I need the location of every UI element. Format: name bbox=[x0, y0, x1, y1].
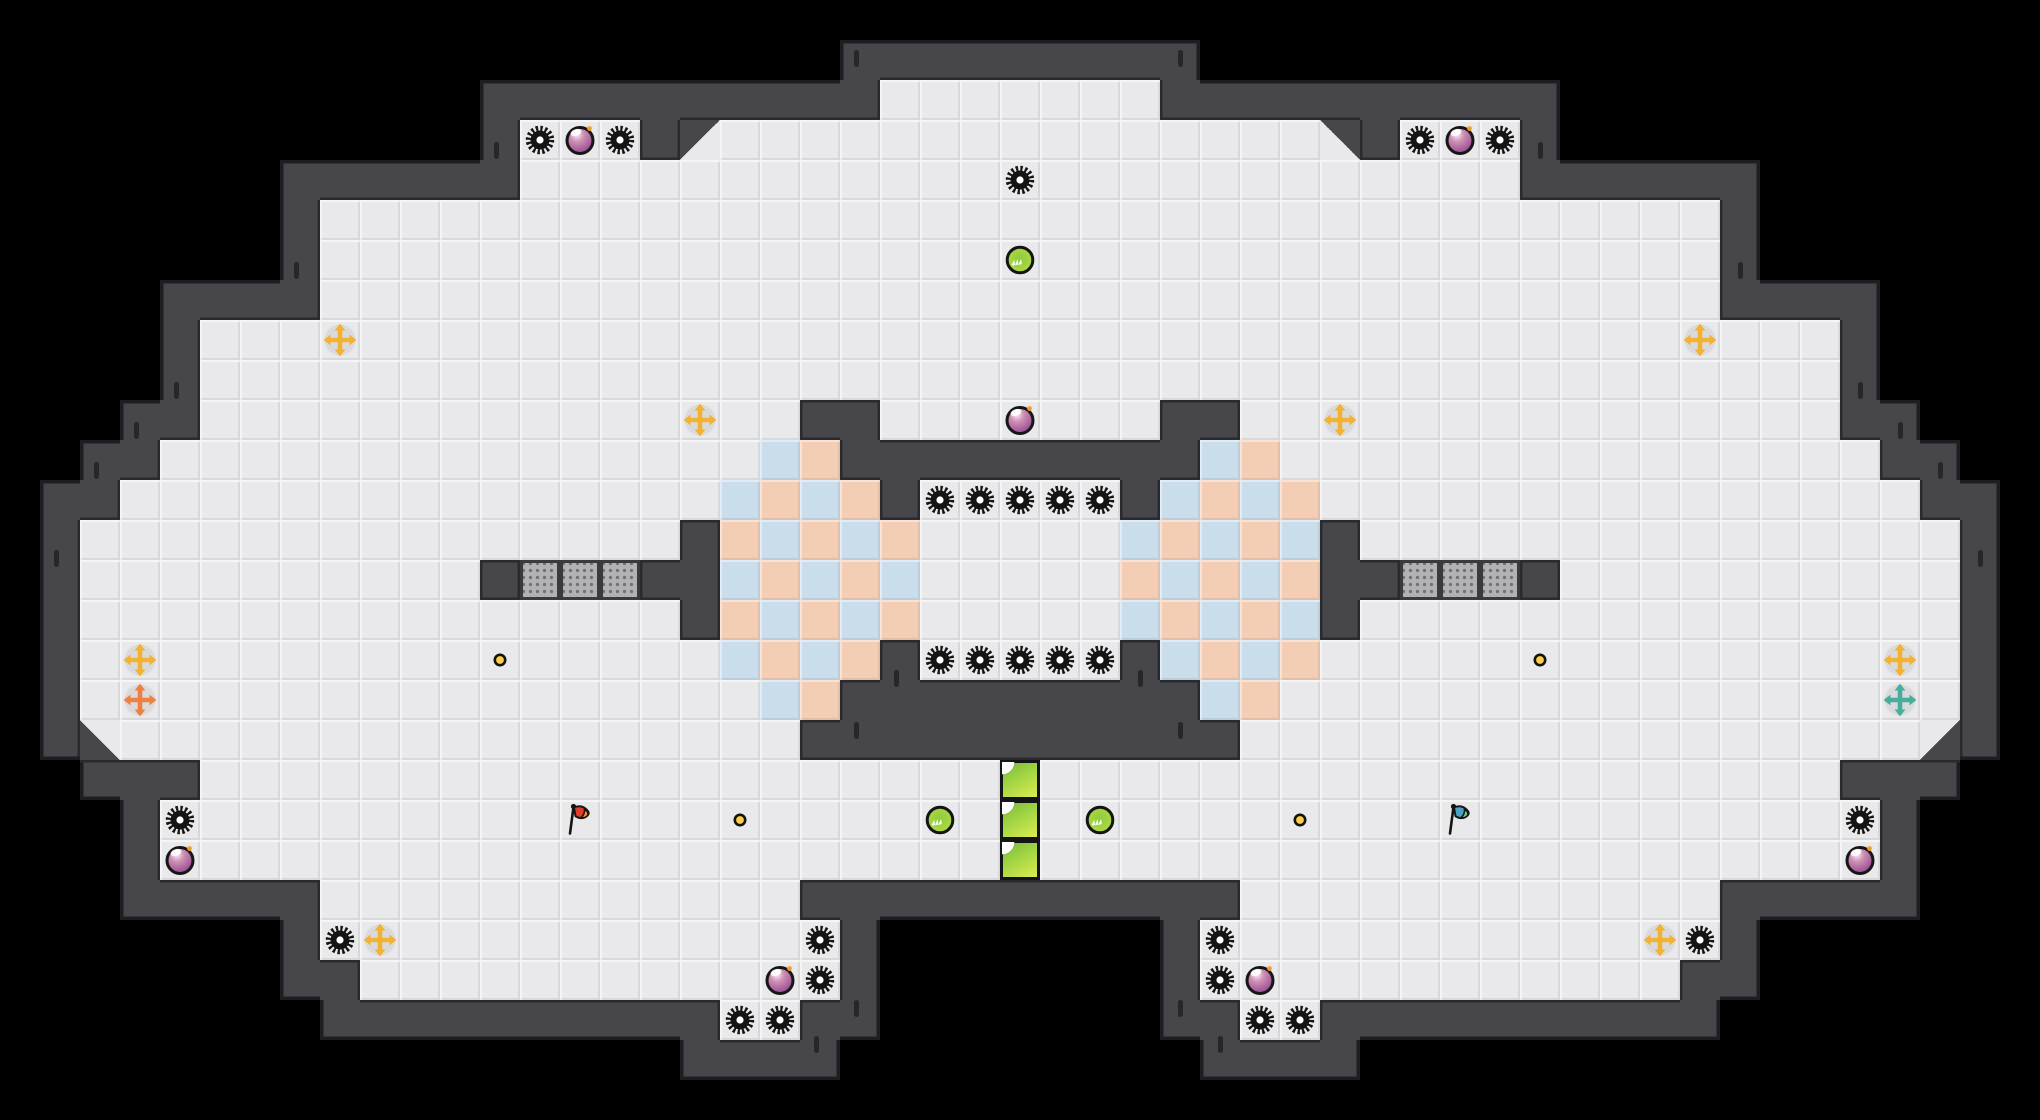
void-tile bbox=[0, 720, 40, 760]
floor-tile bbox=[1200, 240, 1240, 280]
floor-tile bbox=[960, 840, 1000, 880]
wall-tile bbox=[1400, 80, 1440, 120]
wall-tick bbox=[1938, 462, 1943, 479]
wall-tile bbox=[1960, 640, 2000, 680]
floor-tile bbox=[1560, 240, 1600, 280]
void-tile bbox=[880, 0, 920, 40]
floor-tile bbox=[400, 360, 440, 400]
floor-tile bbox=[1400, 360, 1440, 400]
void-tile bbox=[680, 0, 720, 40]
checker-tile-blue bbox=[1200, 680, 1240, 720]
mine-orb-hazard bbox=[1840, 840, 1880, 880]
void-tile bbox=[1480, 1080, 1520, 1120]
floor-tile bbox=[1360, 760, 1400, 800]
void-tile bbox=[160, 120, 200, 160]
floor-tile bbox=[320, 480, 360, 520]
floor-tile bbox=[1320, 280, 1360, 320]
floor-tile bbox=[400, 320, 440, 360]
floor-tile bbox=[320, 240, 360, 280]
void-tile bbox=[1840, 1000, 1880, 1040]
checker-tile-pink bbox=[800, 600, 840, 640]
void-tile bbox=[1120, 1080, 1160, 1120]
wall-tile bbox=[760, 80, 800, 120]
floor-tile bbox=[160, 600, 200, 640]
wall-tile bbox=[560, 80, 600, 120]
floor-tile bbox=[400, 240, 440, 280]
void-tile bbox=[960, 960, 1000, 1000]
void-tile bbox=[1360, 0, 1400, 40]
checker-tile-blue bbox=[1240, 480, 1280, 520]
floor-tile bbox=[1160, 760, 1200, 800]
void-tile bbox=[200, 80, 240, 120]
checker-tile-pink bbox=[720, 600, 760, 640]
wall-tile bbox=[1840, 760, 1880, 800]
floor-tile bbox=[1520, 960, 1560, 1000]
floor-tile bbox=[760, 760, 800, 800]
void-tile bbox=[1960, 1080, 2000, 1120]
floor-tile bbox=[240, 400, 280, 440]
wall-tile bbox=[280, 200, 320, 240]
floor-tile bbox=[600, 240, 640, 280]
floor-tile bbox=[1480, 440, 1520, 480]
void-tile bbox=[2000, 920, 2040, 960]
void-tile bbox=[1000, 1040, 1040, 1080]
void-tile bbox=[1840, 920, 1880, 960]
void-tile bbox=[1640, 120, 1680, 160]
void-tile bbox=[1880, 960, 1920, 1000]
floor-tile bbox=[1800, 520, 1840, 560]
wall-tile bbox=[440, 1000, 480, 1040]
void-tile bbox=[960, 1080, 1000, 1120]
floor-tile bbox=[360, 760, 400, 800]
void-tile bbox=[200, 920, 240, 960]
saw-gear-hazard bbox=[920, 640, 960, 680]
void-tile bbox=[1240, 1080, 1280, 1120]
floor-tile bbox=[1480, 160, 1520, 200]
floor-tile bbox=[1040, 520, 1080, 560]
floor-tile bbox=[360, 440, 400, 480]
checker-tile-pink bbox=[1280, 560, 1320, 600]
checker-tile-blue bbox=[800, 560, 840, 600]
void-tile bbox=[1760, 1000, 1800, 1040]
gold-dot-pickup bbox=[1280, 800, 1320, 840]
floor-tile bbox=[1040, 840, 1080, 880]
floor-tile bbox=[1560, 800, 1600, 840]
void-tile bbox=[1720, 0, 1760, 40]
wall-tile bbox=[40, 560, 80, 600]
void-tile bbox=[80, 80, 120, 120]
floor-tile bbox=[1840, 720, 1880, 760]
void-tile bbox=[2000, 1080, 2040, 1120]
floor-tile bbox=[1840, 680, 1880, 720]
floor-tile bbox=[1440, 960, 1480, 1000]
floor-tile bbox=[1760, 400, 1800, 440]
void-tile bbox=[1720, 120, 1760, 160]
wall-tile bbox=[1280, 80, 1320, 120]
wall-tile bbox=[920, 440, 960, 480]
void-tile bbox=[80, 120, 120, 160]
void-tile bbox=[880, 1080, 920, 1120]
mine-orb-hazard bbox=[1240, 960, 1280, 1000]
saw-gear-hazard bbox=[960, 480, 1000, 520]
floor-tile bbox=[840, 160, 880, 200]
dotted-platform-tile bbox=[1440, 560, 1480, 600]
wall-tile bbox=[280, 160, 320, 200]
floor-tile bbox=[800, 280, 840, 320]
wall-tile bbox=[80, 440, 120, 480]
floor-tile bbox=[840, 200, 880, 240]
floor-tile bbox=[1040, 320, 1080, 360]
void-tile bbox=[1720, 1040, 1760, 1080]
floor-tile bbox=[1400, 680, 1440, 720]
void-tile bbox=[2000, 520, 2040, 560]
void-tile bbox=[1960, 320, 2000, 360]
void-tile bbox=[1760, 160, 1800, 200]
void-tile bbox=[1640, 80, 1680, 120]
floor-tile bbox=[1040, 200, 1080, 240]
floor-tile bbox=[1880, 600, 1920, 640]
wall-tile bbox=[480, 160, 520, 200]
floor-tile bbox=[560, 680, 600, 720]
wall-tile bbox=[1160, 80, 1200, 120]
floor-tile bbox=[280, 320, 320, 360]
wall-tile bbox=[880, 880, 920, 920]
wall-tick bbox=[894, 670, 899, 687]
floor-tile bbox=[600, 880, 640, 920]
floor-tile bbox=[1120, 160, 1160, 200]
wall-tick bbox=[1138, 670, 1143, 687]
floor-tile bbox=[1800, 640, 1840, 680]
void-tile bbox=[0, 80, 40, 120]
floor-tile bbox=[1120, 280, 1160, 320]
void-tile bbox=[1600, 1040, 1640, 1080]
floor-tile bbox=[1240, 160, 1280, 200]
floor-tile bbox=[640, 680, 680, 720]
floor-tile bbox=[1880, 520, 1920, 560]
floor-tile bbox=[240, 840, 280, 880]
wall-tile bbox=[1320, 520, 1360, 560]
void-tile bbox=[400, 1040, 440, 1080]
floor-tile bbox=[200, 720, 240, 760]
void-tile bbox=[2000, 960, 2040, 1000]
void-tile bbox=[1560, 1040, 1600, 1080]
floor-tile bbox=[680, 680, 720, 720]
wall-tile bbox=[1840, 880, 1880, 920]
wall-tile bbox=[1680, 160, 1720, 200]
floor-tile bbox=[400, 880, 440, 920]
wall-tile bbox=[1040, 680, 1080, 720]
floor-tile bbox=[800, 760, 840, 800]
wall-tile bbox=[120, 800, 160, 840]
floor-tile bbox=[1760, 720, 1800, 760]
checker-tile-blue bbox=[1200, 600, 1240, 640]
floor-tile bbox=[80, 560, 120, 600]
void-tile bbox=[1960, 80, 2000, 120]
wall-tile bbox=[840, 880, 880, 920]
floor-tile bbox=[1440, 680, 1480, 720]
floor-tile bbox=[1520, 400, 1560, 440]
void-tile bbox=[1120, 0, 1160, 40]
wall-tile bbox=[840, 1000, 880, 1040]
void-tile bbox=[760, 0, 800, 40]
floor-tile bbox=[1400, 480, 1440, 520]
floor-tile bbox=[440, 520, 480, 560]
floor-tile bbox=[1640, 880, 1680, 920]
floor-tile bbox=[1200, 320, 1240, 360]
floor-tile bbox=[1080, 200, 1120, 240]
floor-tile bbox=[1400, 960, 1440, 1000]
gold-arrow-cross-pickup bbox=[1680, 320, 1720, 360]
floor-tile bbox=[1200, 840, 1240, 880]
floor-tile bbox=[440, 200, 480, 240]
wall-tile bbox=[80, 480, 120, 520]
void-tile bbox=[1800, 40, 1840, 80]
void-tile bbox=[400, 80, 440, 120]
wall-tile bbox=[800, 880, 840, 920]
wall-tile bbox=[1160, 680, 1200, 720]
floor-tile bbox=[1280, 760, 1320, 800]
void-tile bbox=[200, 200, 240, 240]
void-tile bbox=[80, 800, 120, 840]
floor-tile bbox=[480, 800, 520, 840]
floor-tile bbox=[1520, 200, 1560, 240]
void-tile bbox=[280, 40, 320, 80]
floor-tile bbox=[520, 800, 560, 840]
wall-tick bbox=[94, 462, 99, 479]
floor-tile bbox=[1880, 560, 1920, 600]
void-tile bbox=[120, 0, 160, 40]
void-tile bbox=[680, 1080, 720, 1120]
void-tile bbox=[920, 920, 960, 960]
saw-gear-hazard bbox=[1680, 920, 1720, 960]
void-tile bbox=[960, 0, 1000, 40]
floor-tile bbox=[640, 760, 680, 800]
void-tile bbox=[760, 1080, 800, 1120]
wall-tile bbox=[880, 720, 920, 760]
wall-tile bbox=[120, 440, 160, 480]
checker-tile-blue bbox=[800, 480, 840, 520]
floor-tile bbox=[1280, 160, 1320, 200]
saw-gear-hazard bbox=[760, 1000, 800, 1040]
floor-tile bbox=[1160, 160, 1200, 200]
green-bouncer bbox=[1080, 800, 1120, 840]
floor-tile bbox=[360, 400, 400, 440]
wall-tile bbox=[600, 80, 640, 120]
checker-tile-blue bbox=[760, 440, 800, 480]
floor-tile bbox=[1280, 280, 1320, 320]
floor-tile bbox=[1000, 120, 1040, 160]
void-tile bbox=[1760, 1080, 1800, 1120]
floor-tile bbox=[1240, 920, 1280, 960]
floor-tile bbox=[480, 280, 520, 320]
floor-tile bbox=[1320, 880, 1360, 920]
void-tile bbox=[1960, 0, 2000, 40]
floor-tile bbox=[840, 360, 880, 400]
checker-tile-blue bbox=[720, 640, 760, 680]
floor-tile bbox=[360, 960, 400, 1000]
wall-tile bbox=[1080, 40, 1120, 80]
floor-tile bbox=[480, 920, 520, 960]
void-tile bbox=[80, 240, 120, 280]
floor-tile bbox=[1640, 960, 1680, 1000]
void-tile bbox=[40, 800, 80, 840]
floor-tile bbox=[520, 640, 560, 680]
floor-tile bbox=[200, 800, 240, 840]
wall-tile bbox=[40, 680, 80, 720]
floor-tile bbox=[1480, 840, 1520, 880]
checker-tile-blue bbox=[720, 480, 760, 520]
level-canvas[interactable] bbox=[0, 0, 2040, 1120]
wall-tile bbox=[320, 960, 360, 1000]
void-tile bbox=[1480, 0, 1520, 40]
floor-tile bbox=[640, 160, 680, 200]
void-tile bbox=[560, 1040, 600, 1080]
floor-tile bbox=[1560, 600, 1600, 640]
floor-tile bbox=[1440, 320, 1480, 360]
floor-tile bbox=[560, 240, 600, 280]
floor-tile bbox=[360, 520, 400, 560]
floor-tile bbox=[1120, 840, 1160, 880]
floor-tile bbox=[1200, 360, 1240, 400]
void-tile bbox=[0, 520, 40, 560]
floor-tile bbox=[1200, 160, 1240, 200]
checker-tile-blue bbox=[760, 520, 800, 560]
floor-tile bbox=[520, 320, 560, 360]
floor-tile bbox=[560, 600, 600, 640]
void-tile bbox=[360, 1040, 400, 1080]
floor-tile bbox=[1800, 720, 1840, 760]
void-tile bbox=[120, 1080, 160, 1120]
floor-tile bbox=[1760, 360, 1800, 400]
wall-tile bbox=[1880, 880, 1920, 920]
floor-tile bbox=[1120, 80, 1160, 120]
wall-tile bbox=[480, 80, 520, 120]
wall-tile bbox=[1040, 720, 1080, 760]
floor-tile bbox=[1760, 600, 1800, 640]
void-tile bbox=[1800, 200, 1840, 240]
floor-tile bbox=[280, 600, 320, 640]
void-tile bbox=[1200, 1080, 1240, 1120]
void-tile bbox=[40, 840, 80, 880]
floor-tile bbox=[1720, 440, 1760, 480]
void-tile bbox=[240, 120, 280, 160]
floor-tile bbox=[1600, 240, 1640, 280]
floor-tile bbox=[1720, 720, 1760, 760]
floor-tile bbox=[320, 200, 360, 240]
wall-tile bbox=[680, 600, 720, 640]
wall-tile bbox=[360, 160, 400, 200]
void-tile bbox=[1360, 1080, 1400, 1120]
floor-tile bbox=[1160, 200, 1200, 240]
floor-tile bbox=[1240, 840, 1280, 880]
wall-tile bbox=[680, 520, 720, 560]
void-tile bbox=[360, 40, 400, 80]
floor-tile bbox=[440, 280, 480, 320]
floor-tile bbox=[720, 720, 760, 760]
floor-tile bbox=[1440, 240, 1480, 280]
floor-tile bbox=[240, 320, 280, 360]
wall-tick bbox=[1898, 422, 1903, 439]
checker-tile-pink bbox=[1200, 640, 1240, 680]
floor-tile bbox=[1360, 400, 1400, 440]
floor-tile bbox=[920, 520, 960, 560]
floor-tile bbox=[360, 480, 400, 520]
wall-tile bbox=[1920, 480, 1960, 520]
wall-tick bbox=[294, 262, 299, 279]
teal-arrow-cross-pickup bbox=[1880, 680, 1920, 720]
saw-gear-hazard bbox=[1240, 1000, 1280, 1040]
floor-tile bbox=[1640, 760, 1680, 800]
floor-tile bbox=[1240, 720, 1280, 760]
floor-tile bbox=[1240, 240, 1280, 280]
floor-tile bbox=[1040, 80, 1080, 120]
wall-tile bbox=[1240, 1040, 1280, 1080]
floor-tile bbox=[240, 560, 280, 600]
floor-tile bbox=[1440, 360, 1480, 400]
floor-tile bbox=[880, 760, 920, 800]
void-tile bbox=[1560, 0, 1600, 40]
void-tile bbox=[440, 40, 480, 80]
floor-tile bbox=[400, 680, 440, 720]
floor-tile bbox=[1320, 160, 1360, 200]
floor-tile bbox=[680, 160, 720, 200]
void-tile bbox=[1760, 240, 1800, 280]
floor-tile bbox=[1560, 640, 1600, 680]
floor-tile bbox=[1400, 800, 1440, 840]
void-tile bbox=[440, 120, 480, 160]
void-tile bbox=[400, 0, 440, 40]
wall-tick bbox=[174, 382, 179, 399]
void-tile bbox=[1160, 0, 1200, 40]
wall-tile bbox=[800, 80, 840, 120]
void-tile bbox=[2000, 40, 2040, 80]
floor-tile bbox=[520, 400, 560, 440]
void-tile bbox=[0, 840, 40, 880]
wall-tile bbox=[1360, 120, 1400, 160]
floor-tile bbox=[1000, 320, 1040, 360]
void-tile bbox=[1040, 960, 1080, 1000]
void-tile bbox=[880, 1040, 920, 1080]
wall-tile bbox=[1520, 560, 1560, 600]
floor-tile bbox=[760, 200, 800, 240]
floor-tile bbox=[1720, 640, 1760, 680]
void-tile bbox=[840, 1040, 880, 1080]
checker-tile-blue bbox=[1120, 520, 1160, 560]
void-tile bbox=[120, 1000, 160, 1040]
checker-tile-pink bbox=[800, 440, 840, 480]
floor-tile bbox=[1520, 360, 1560, 400]
floor-tile bbox=[640, 640, 680, 680]
floor-tile bbox=[1680, 720, 1720, 760]
floor-tile bbox=[1360, 720, 1400, 760]
void-tile bbox=[40, 120, 80, 160]
floor-tile bbox=[1360, 280, 1400, 320]
void-tile bbox=[1600, 1080, 1640, 1120]
void-tile bbox=[40, 280, 80, 320]
void-tile bbox=[320, 1040, 360, 1080]
void-tile bbox=[2000, 120, 2040, 160]
floor-tile bbox=[1320, 920, 1360, 960]
floor-tile bbox=[1600, 760, 1640, 800]
floor-tile bbox=[1320, 680, 1360, 720]
floor-tile bbox=[760, 720, 800, 760]
void-tile bbox=[1600, 0, 1640, 40]
floor-tile bbox=[680, 480, 720, 520]
floor-tile bbox=[240, 720, 280, 760]
floor-tile bbox=[1440, 920, 1480, 960]
void-tile bbox=[1560, 40, 1600, 80]
floor-tile bbox=[1480, 240, 1520, 280]
